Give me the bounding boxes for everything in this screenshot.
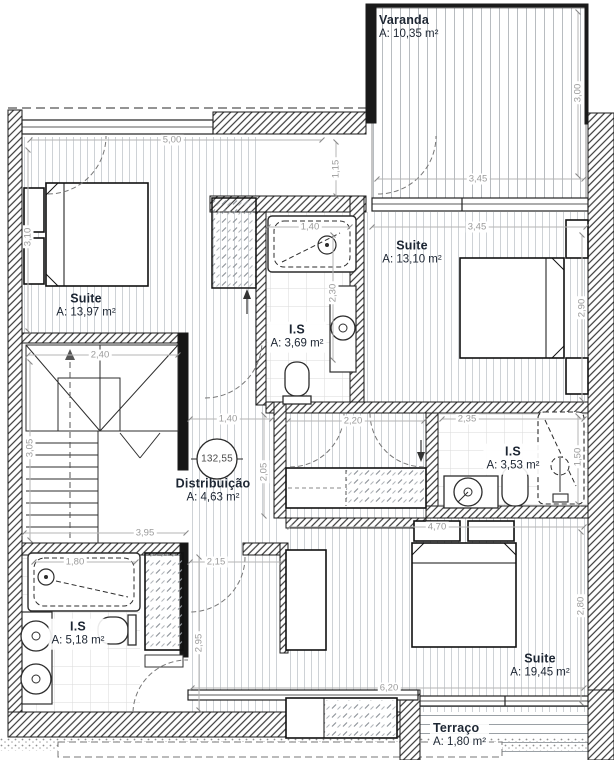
room-area: A: 3,69 m² <box>270 338 323 351</box>
wall-ext-left <box>8 110 22 737</box>
dim-bottom-left-width: 3,95 <box>134 528 157 539</box>
dim-stair-width: 2,40 <box>89 350 112 361</box>
dim-opening-top: 1,15 <box>331 158 342 181</box>
room-area: A: 1,80 m² <box>433 736 486 749</box>
dim-dist-width: 1,40 <box>217 414 240 425</box>
dim-varanda-width: 3,45 <box>467 174 490 185</box>
window-top-left <box>22 120 213 134</box>
dim-top-left-width: 5,00 <box>161 135 184 146</box>
window-varanda <box>372 198 588 211</box>
nightstand <box>566 358 588 394</box>
window-terraco-door <box>420 696 588 706</box>
room-label-is-bottom-left: I.S A: 5,18 m² <box>48 619 107 650</box>
wall-top-mid <box>213 112 366 134</box>
room-area: A: 3,53 m² <box>486 460 539 473</box>
dim-suite-tr-width: 3,45 <box>466 222 489 233</box>
wall-dist-right <box>274 402 286 518</box>
wall-stair-right <box>178 333 188 470</box>
dim-corridor-top: 2,20 <box>342 416 365 427</box>
room-label-suite-top-right: Suite A: 13,10 m² <box>382 239 441 268</box>
wardrobe-corridor <box>286 468 426 508</box>
nightstand <box>468 521 514 541</box>
dim-door-opening: 2,15 <box>205 557 228 568</box>
room-area: A: 13,10 m² <box>382 254 441 267</box>
room-label-suite-top-left: Suite A: 13,97 m² <box>56 292 115 321</box>
wall-mid-horizontal <box>266 402 588 413</box>
level-marker-value: 132,55 <box>201 454 233 465</box>
wall-stair-top <box>22 333 188 343</box>
wall-varanda-right <box>585 4 588 124</box>
room-name: Suite <box>56 292 115 306</box>
room-name: Terraço <box>433 721 486 735</box>
room-label-terraco: Terraço A: 1,80 m² <box>430 720 489 751</box>
room-label-distribuicao: Distribuição A: 4,63 m² <box>176 477 251 506</box>
room-label-is-right: I.S A: 3,53 m² <box>483 444 542 475</box>
room-area: A: 10,35 m² <box>379 28 438 41</box>
sink-right <box>444 476 498 508</box>
room-area: A: 5,18 m² <box>51 635 104 648</box>
wall-varanda-top <box>366 4 588 7</box>
room-area: A: 4,63 m² <box>176 492 251 505</box>
dim-dist-height: 2,05 <box>259 461 270 484</box>
dim-suite-tl-height: 3,10 <box>23 226 34 249</box>
room-name: Distribuição <box>176 477 251 491</box>
floor-plan-canvas: Varanda A: 10,35 m² Suite A: 13,97 m² Su… <box>0 0 614 760</box>
room-name: Suite <box>382 239 441 253</box>
dim-bottom-width: 6,20 <box>378 683 401 694</box>
room-name: I.S <box>486 445 539 459</box>
door-is-bottom-left <box>133 660 188 712</box>
room-name: Varanda <box>379 13 438 27</box>
dim-suite-b-width: 4,70 <box>426 522 449 533</box>
sink-bottom-left <box>21 612 52 704</box>
room-name: Suite <box>510 652 569 666</box>
dim-stair-height: 3,05 <box>25 437 36 460</box>
wall-varanda-left <box>366 5 376 123</box>
wall-ext-right <box>588 113 614 712</box>
dim-suite-b-height: 2,80 <box>576 595 587 618</box>
dim-is-right-height: 1,50 <box>573 446 584 469</box>
wall-terraco-right <box>588 690 614 760</box>
room-area: A: 13,97 m² <box>56 307 115 320</box>
dim-bath-center-height: 2,30 <box>328 282 339 305</box>
dim-bath-center-width: 1,40 <box>299 222 322 233</box>
wall-bath-left <box>256 212 266 405</box>
toilet-center <box>283 362 311 404</box>
room-label-varanda: Varanda A: 10,35 m² <box>379 13 438 42</box>
dim-varanda-depth: 3,00 <box>573 82 584 105</box>
dim-corridor-height: 2,95 <box>194 632 205 655</box>
room-name: I.S <box>51 620 104 634</box>
wardrobe-bottom-left <box>145 553 183 667</box>
dim-tub-width: 1,80 <box>64 557 87 568</box>
room-label-is-center: I.S A: 3,69 m² <box>267 322 326 353</box>
nightstand <box>566 220 588 258</box>
wall-is-right-left <box>426 413 438 517</box>
room-name: I.S <box>270 323 323 337</box>
dim-is-right-width: 2,35 <box>456 414 479 425</box>
wardrobe-top <box>212 198 256 288</box>
room-label-suite-bottom: Suite A: 19,45 m² <box>510 652 569 681</box>
room-area: A: 19,45 m² <box>510 667 569 680</box>
dim-suite-tr-height: 2,90 <box>577 297 588 320</box>
